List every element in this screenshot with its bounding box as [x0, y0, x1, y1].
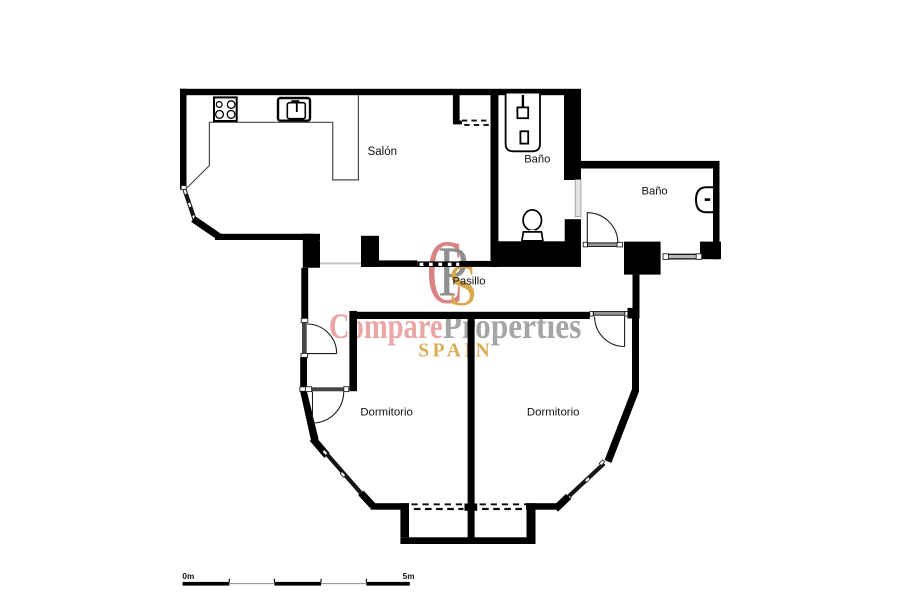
svg-text:Salón: Salón: [368, 146, 397, 158]
svg-text:Baño: Baño: [524, 154, 550, 166]
svg-text:Baño: Baño: [642, 186, 668, 198]
svg-text:SPAIN: SPAIN: [418, 341, 493, 362]
svg-text:5m: 5m: [403, 572, 415, 581]
svg-text:0m: 0m: [182, 572, 194, 581]
svg-text:Dormitorio: Dormitorio: [360, 407, 413, 419]
svg-text:Dormitorio: Dormitorio: [527, 407, 580, 419]
svg-text:Pasillo: Pasillo: [453, 276, 486, 288]
